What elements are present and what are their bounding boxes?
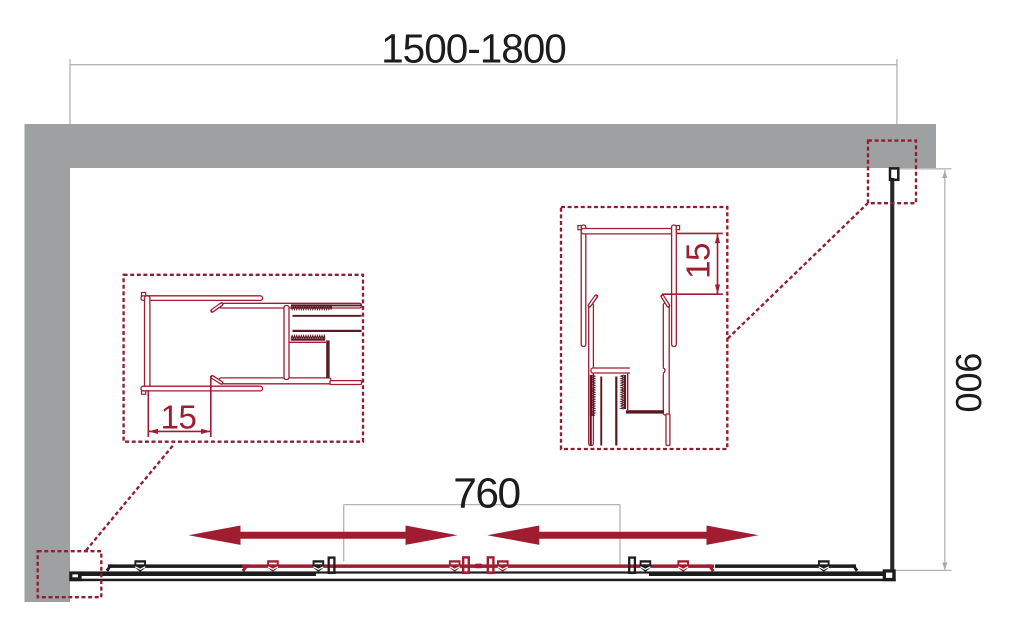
svg-text:760: 760 [453,471,519,518]
svg-text:900: 900 [948,352,989,412]
svg-text:15: 15 [161,399,197,436]
svg-text:1500-1800: 1500-1800 [381,26,566,72]
svg-text:15: 15 [680,243,717,279]
